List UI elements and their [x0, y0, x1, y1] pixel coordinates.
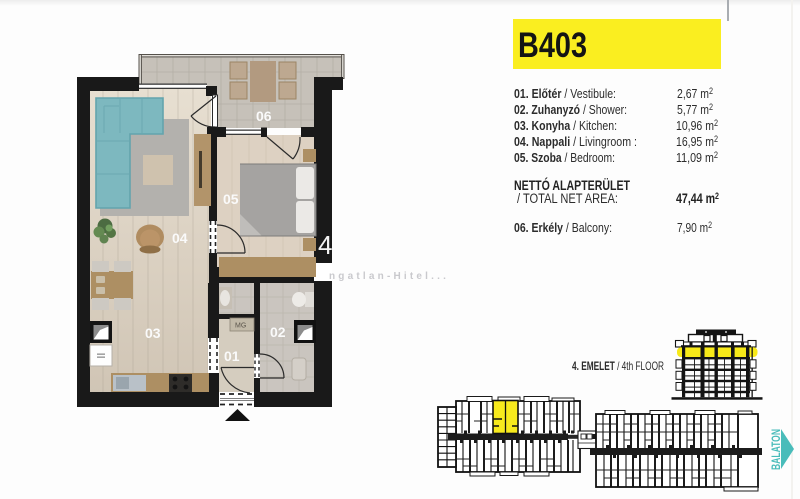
svg-text:ngatlan-Hitel...: ngatlan-Hitel...	[329, 271, 449, 282]
svg-text:/ TOTAL NET AREA:: / TOTAL NET AREA:	[517, 191, 618, 206]
svg-text:02. Zuhanyzó / Shower:: 02. Zuhanyzó / Shower:	[514, 102, 627, 117]
svg-text:16,95 m2: 16,95 m2	[676, 134, 718, 149]
svg-text:BALATON: BALATON	[771, 429, 783, 470]
svg-text:01. Előtér / Vestibule:: 01. Előtér / Vestibule:	[514, 86, 616, 101]
svg-text:4: 4	[318, 230, 332, 260]
svg-text:4. EMELET / 4th FLOOR: 4. EMELET / 4th FLOOR	[572, 359, 664, 373]
svg-text:02: 02	[270, 324, 286, 340]
svg-text:05. Szoba / Bedroom:: 05. Szoba / Bedroom:	[514, 150, 615, 165]
svg-text:10,96 m2: 10,96 m2	[676, 118, 718, 133]
svg-text:B403: B403	[518, 26, 587, 65]
svg-text:11,09 m2: 11,09 m2	[676, 150, 718, 165]
svg-text:06: 06	[256, 108, 272, 124]
svg-text:03. Konyha / Kitchen:: 03. Konyha / Kitchen:	[514, 118, 617, 133]
svg-text:47,44 m2: 47,44 m2	[676, 191, 719, 206]
svg-text:2,67 m2: 2,67 m2	[677, 86, 713, 101]
svg-text:06. Erkély / Balcony:: 06. Erkély / Balcony:	[514, 220, 612, 235]
svg-text:MG: MG	[235, 323, 246, 330]
svg-text:03: 03	[145, 325, 161, 341]
svg-text:04: 04	[172, 230, 188, 246]
svg-text:01: 01	[224, 348, 240, 364]
svg-text:7,90 m2: 7,90 m2	[677, 220, 712, 235]
svg-text:05: 05	[223, 191, 239, 207]
svg-text:04. Nappali / Livingroom :: 04. Nappali / Livingroom :	[514, 134, 637, 149]
svg-text:5,77 m2: 5,77 m2	[677, 102, 713, 117]
